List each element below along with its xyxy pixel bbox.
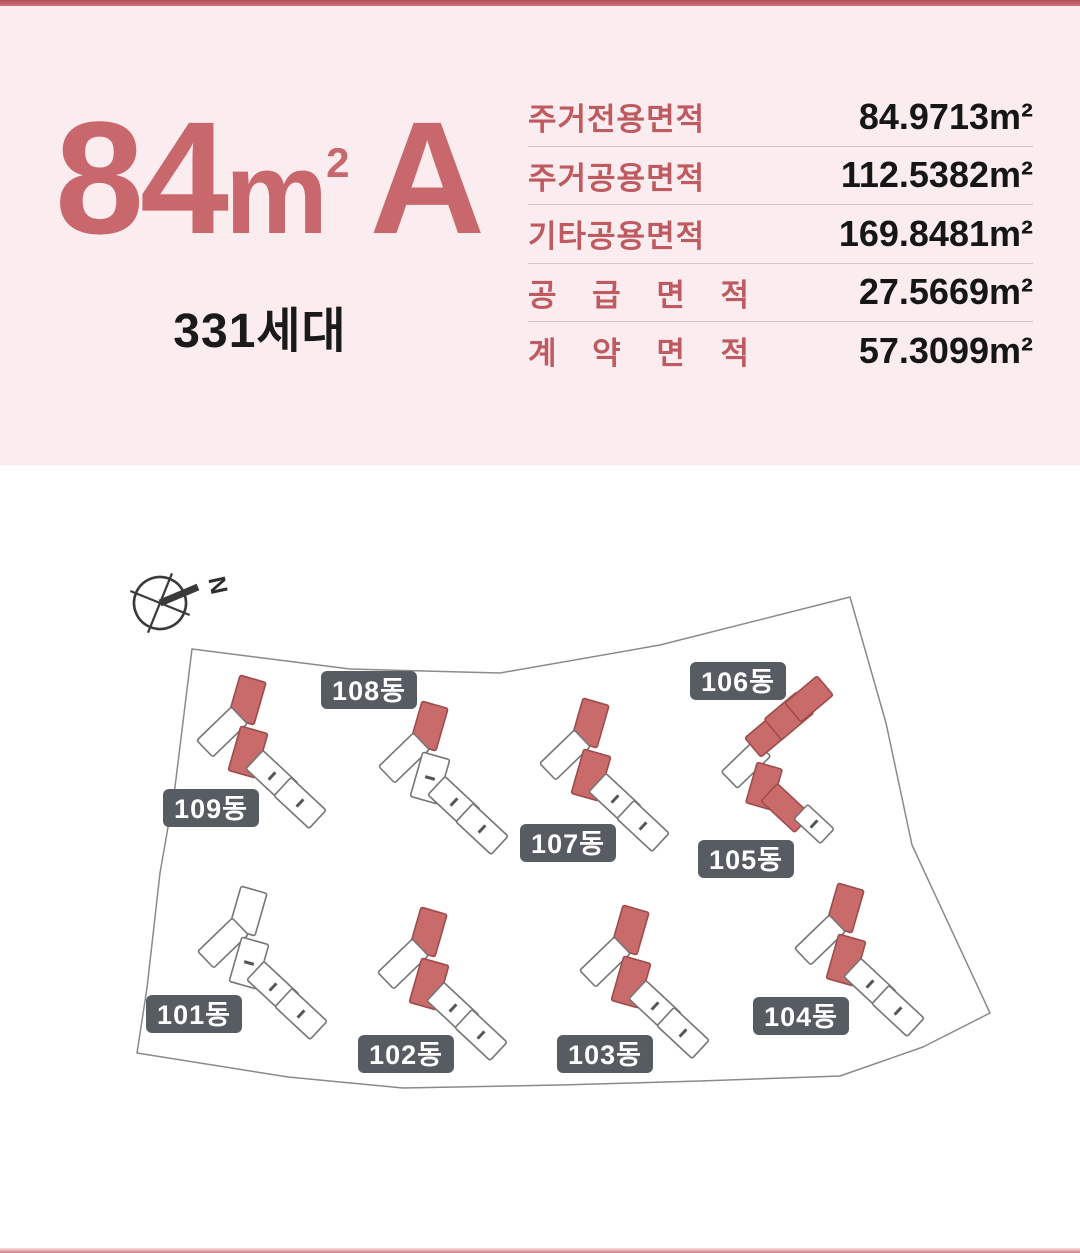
area-row-2: 기타공용면적169.8481m² — [528, 205, 1033, 264]
building-label-108동: 108동 — [321, 671, 417, 709]
building-108동 — [379, 701, 508, 854]
area-row-label: 기타공용면적 — [528, 211, 750, 256]
banner: 84m2A 331세대 주거전용면적84.9713m²주거공용면적112.538… — [0, 0, 1080, 465]
area-row-value: 112.5382m² — [841, 154, 1033, 196]
building-label-102동: 102동 — [358, 1035, 454, 1073]
area-row-label: 계 약 면 적 — [528, 328, 750, 373]
building-label-text: 108동 — [332, 676, 406, 706]
building-label-106동: 106동 — [690, 662, 786, 700]
building-label-text: 101동 — [157, 1000, 231, 1030]
building-label-text: 105동 — [709, 845, 783, 875]
building-label-105동: 105동 — [698, 840, 794, 878]
bottom-accent-line — [0, 1248, 1080, 1253]
site-plan: N 101동102동103동104동105동106동107동108동109동 — [0, 463, 1080, 1253]
area-row-label: 주거공용면적 — [528, 153, 750, 198]
building-label-103동: 103동 — [557, 1035, 653, 1073]
area-table: 주거전용면적84.9713m²주거공용면적112.5382m²기타공용면적169… — [528, 88, 1033, 380]
building-label-text: 103동 — [568, 1040, 642, 1070]
building-label-109동: 109동 — [163, 789, 259, 827]
page: 84m2A 331세대 주거전용면적84.9713m²주거공용면적112.538… — [0, 0, 1080, 1253]
unit-type-sup: 2 — [326, 139, 349, 186]
building-label-text: 102동 — [369, 1040, 443, 1070]
building-label-text: 109동 — [174, 794, 248, 824]
unit-type-area: 84 — [55, 88, 225, 267]
building-label-104동: 104동 — [753, 997, 849, 1035]
area-row-label: 주거전용면적 — [528, 94, 750, 139]
area-row-value: 57.3099m² — [859, 330, 1033, 372]
building-label-text: 107동 — [531, 829, 605, 859]
compass-icon: N — [118, 561, 232, 644]
building-label-107동: 107동 — [520, 824, 616, 862]
area-row-4: 계 약 면 적57.3099m² — [528, 322, 1033, 380]
top-accent-bar — [0, 0, 1080, 6]
area-row-value: 169.8481m² — [839, 213, 1033, 255]
unit-type-title: 84m2A — [55, 98, 465, 258]
building-label-101동: 101동 — [146, 995, 242, 1033]
building-label-text: 104동 — [764, 1002, 838, 1032]
building-label-text: 106동 — [701, 667, 775, 697]
building-105동 — [721, 740, 834, 844]
unit-type-m: m — [225, 128, 326, 258]
area-row-1: 주거공용면적112.5382m² — [528, 147, 1033, 206]
unit-type-suffix: A — [369, 88, 485, 267]
compass-north-label: N — [202, 574, 232, 597]
area-row-3: 공 급 면 적27.5669m² — [528, 264, 1033, 323]
area-row-label: 공 급 면 적 — [528, 270, 750, 315]
site-plan-svg: N 101동102동103동104동105동106동107동108동109동 — [0, 463, 1080, 1253]
area-row-0: 주거전용면적84.9713m² — [528, 88, 1033, 147]
area-row-value: 84.9713m² — [859, 96, 1033, 138]
area-row-value: 27.5669m² — [859, 271, 1033, 313]
households-count: 331세대 — [55, 291, 465, 361]
